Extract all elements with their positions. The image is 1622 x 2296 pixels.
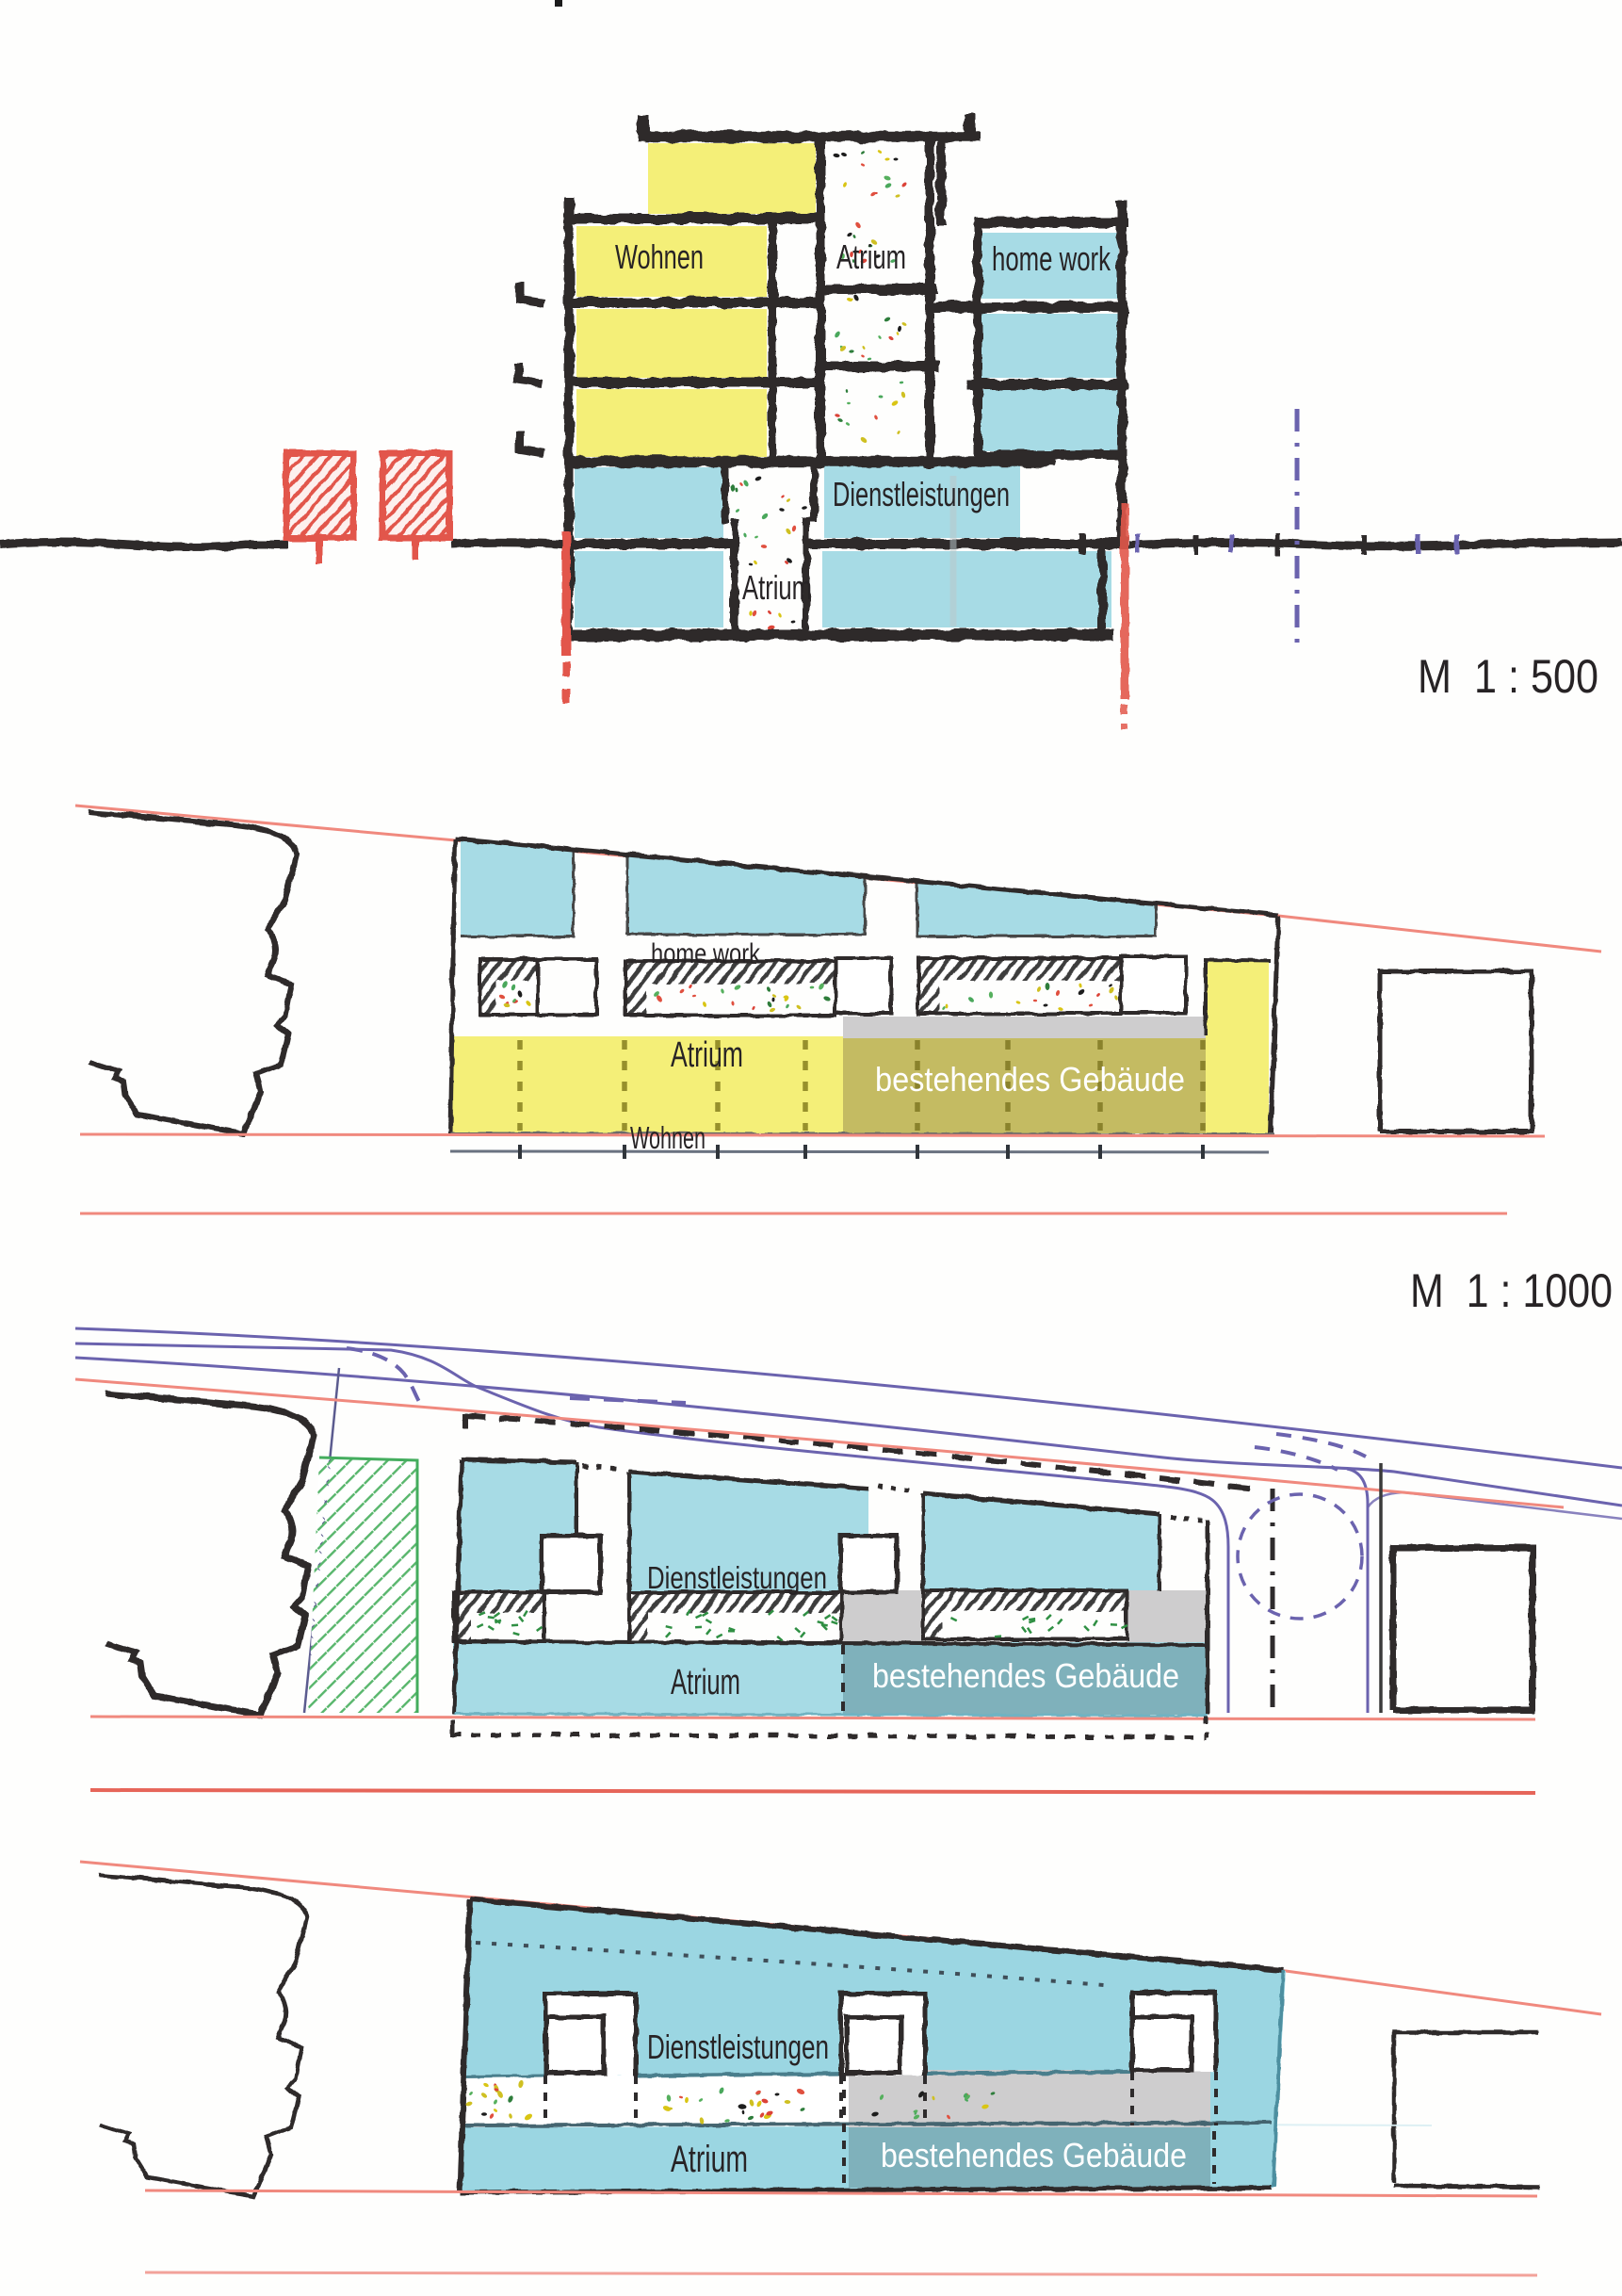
svg-text:Atrium: Atrium xyxy=(671,1035,743,1075)
svg-text:Dienstleistungen: Dienstleistungen xyxy=(833,475,1010,513)
svg-text:Wohnen: Wohnen xyxy=(615,237,704,276)
svg-text:bestehendes Gebäude: bestehendes Gebäude xyxy=(872,1656,1179,1695)
svg-text:Atrium: Atrium xyxy=(836,237,906,276)
svg-text:M 1 : 1000: M 1 : 1000 xyxy=(1410,1264,1613,1317)
svg-text:Atrium: Atrium xyxy=(671,2139,748,2180)
svg-text:bestehendes Gebäude: bestehendes Gebäude xyxy=(881,2136,1187,2174)
svg-text:Dienstleistungen: Dienstleistungen xyxy=(647,1560,827,1595)
svg-text:bestehendes Gebäude: bestehendes Gebäude xyxy=(875,1060,1185,1099)
svg-text:home work: home work xyxy=(651,938,761,969)
svg-text:home work: home work xyxy=(992,239,1111,278)
svg-text:Wohnen: Wohnen xyxy=(630,1120,706,1155)
svg-text:Dienstleistungen: Dienstleistungen xyxy=(647,2027,829,2066)
svg-text:M 1 : 500: M 1 : 500 xyxy=(1418,650,1598,703)
svg-text:Atrium: Atrium xyxy=(742,568,812,607)
svg-text:Atrium: Atrium xyxy=(671,1663,740,1702)
